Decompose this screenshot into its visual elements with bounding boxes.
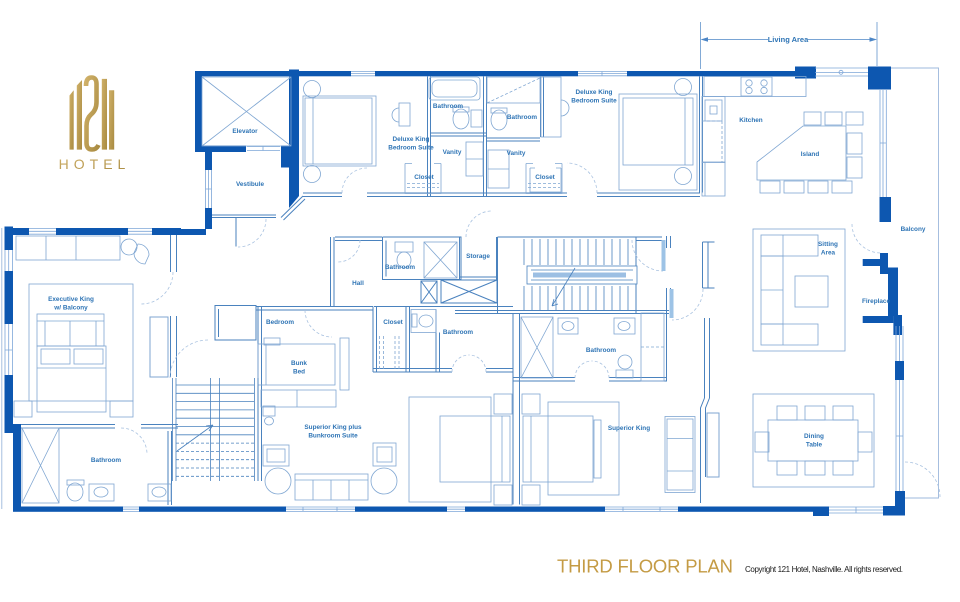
- svg-text:Bathroom: Bathroom: [443, 329, 473, 336]
- svg-text:Balcony: Balcony: [901, 226, 926, 233]
- svg-text:Bathroom: Bathroom: [91, 457, 121, 464]
- svg-text:Bathroom: Bathroom: [507, 114, 537, 121]
- svg-text:Closet: Closet: [383, 319, 403, 326]
- svg-text:w/ Balcony: w/ Balcony: [53, 305, 88, 312]
- svg-text:Closet: Closet: [414, 174, 434, 181]
- svg-text:Elevator: Elevator: [232, 128, 258, 135]
- svg-text:Vestibule: Vestibule: [236, 181, 265, 188]
- svg-text:Bed: Bed: [293, 369, 305, 376]
- svg-text:Hall: Hall: [352, 280, 364, 287]
- svg-text:Bedroom: Bedroom: [266, 319, 294, 326]
- svg-text:Vanity: Vanity: [443, 149, 462, 156]
- svg-text:Area: Area: [821, 250, 836, 257]
- svg-text:HOTEL: HOTEL: [59, 156, 131, 172]
- svg-text:Bedroom Suite: Bedroom Suite: [388, 145, 434, 152]
- svg-text:Fireplace: Fireplace: [862, 298, 891, 305]
- svg-text:THIRD FLOOR PLAN: THIRD FLOOR PLAN: [557, 556, 733, 577]
- svg-text:Vanity: Vanity: [507, 150, 526, 157]
- svg-text:Bathroom: Bathroom: [433, 103, 463, 110]
- svg-text:Bathroom: Bathroom: [385, 264, 415, 271]
- svg-text:Superior King plus: Superior King plus: [304, 424, 362, 431]
- svg-text:Executive King: Executive King: [48, 296, 94, 303]
- svg-text:Kitchen: Kitchen: [739, 117, 763, 124]
- svg-text:Closet: Closet: [535, 174, 555, 181]
- svg-text:Sitting: Sitting: [818, 241, 838, 248]
- svg-text:Bunkroom Suite: Bunkroom Suite: [308, 433, 358, 440]
- svg-text:Bedroom Suite: Bedroom Suite: [571, 98, 617, 105]
- svg-text:Copyright 121 Hotel, Nashville: Copyright 121 Hotel, Nashville. All righ…: [745, 565, 903, 574]
- svg-text:Bathroom: Bathroom: [586, 347, 616, 354]
- svg-text:Storage: Storage: [466, 253, 490, 260]
- svg-text:Deluxe King: Deluxe King: [576, 89, 613, 96]
- svg-text:Superior King: Superior King: [608, 425, 650, 432]
- svg-text:Table: Table: [806, 442, 823, 449]
- svg-text:Island: Island: [801, 151, 820, 158]
- svg-text:Deluxe King: Deluxe King: [393, 136, 430, 143]
- svg-text:Dining: Dining: [804, 433, 824, 440]
- svg-text:Bunk: Bunk: [291, 360, 307, 367]
- svg-text:Living Area: Living Area: [768, 35, 809, 44]
